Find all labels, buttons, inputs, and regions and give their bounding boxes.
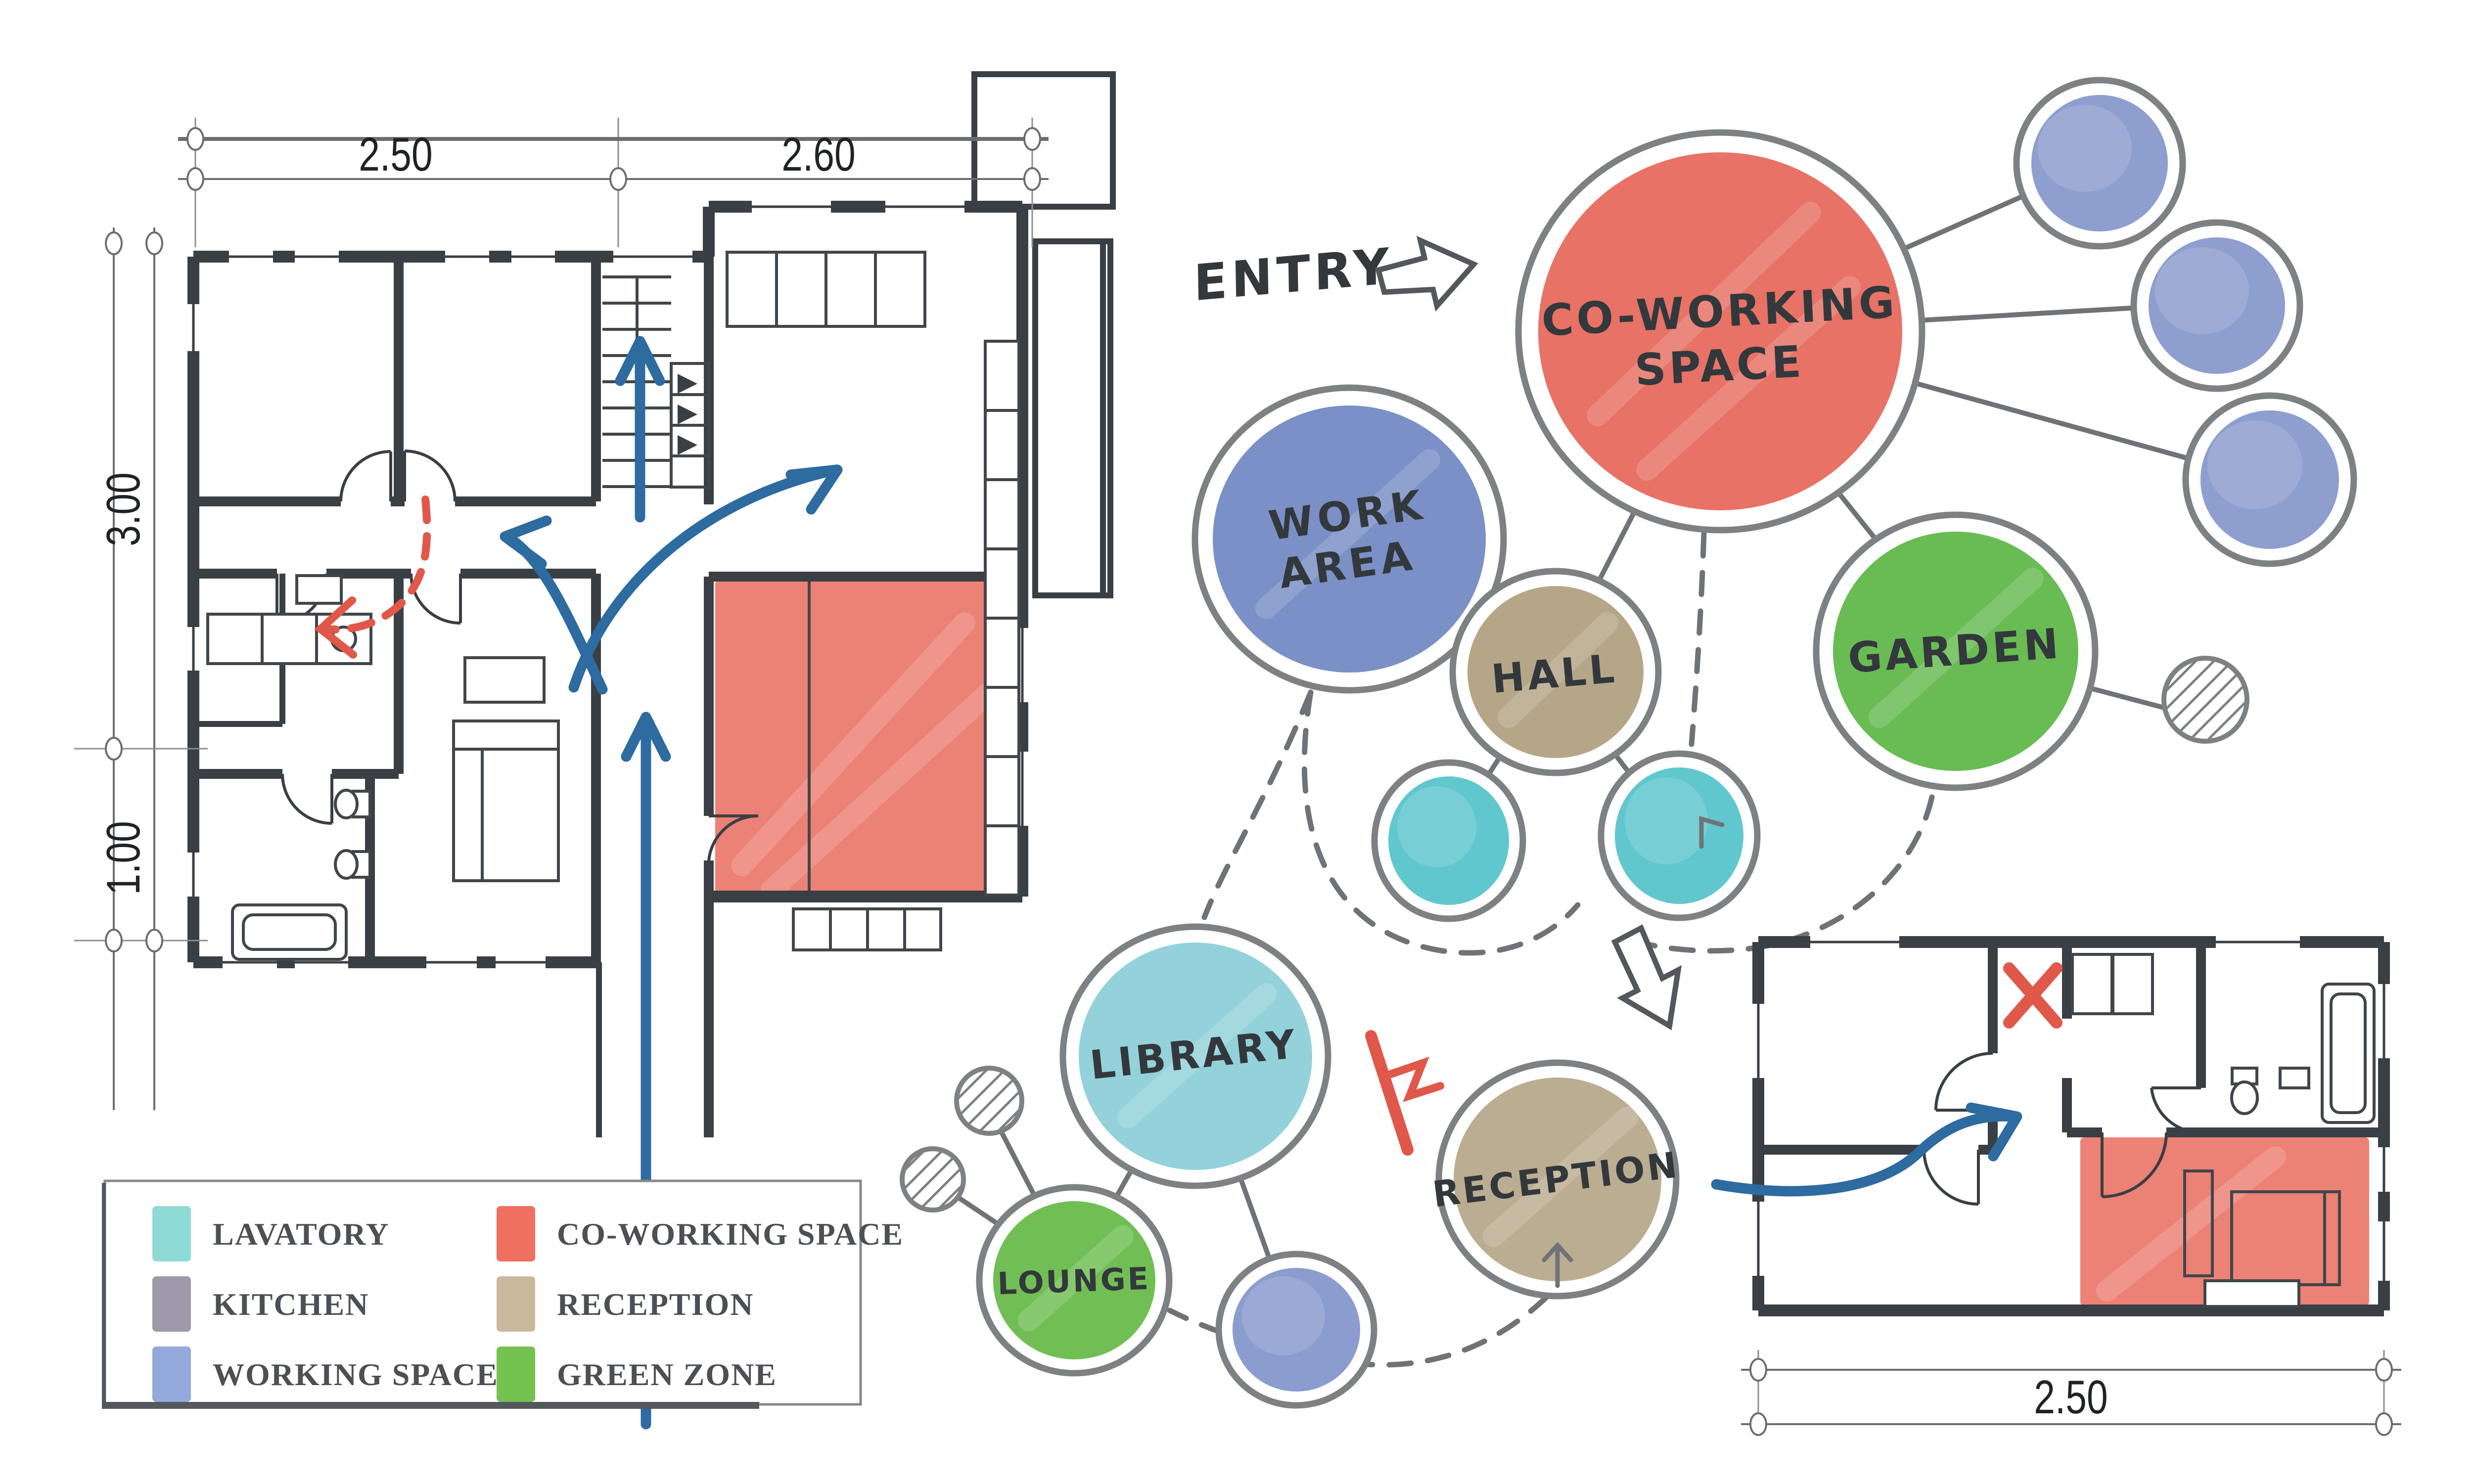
legend-label-coworking-space: CO-WORKING SPACE: [557, 1216, 904, 1252]
garden-hatched-node: [2164, 658, 2247, 741]
bidet: [335, 851, 370, 878]
bubble-lavatory-2: [1601, 754, 1757, 918]
bench: [2205, 1281, 2299, 1306]
dim-left-lower-value: 1.00: [97, 821, 150, 895]
legend-swatch-lavatory: [152, 1206, 191, 1261]
bubble-hall: HALL: [1453, 571, 1658, 773]
entry-annotation: ENTRY: [1193, 232, 1479, 315]
sink: [2280, 1068, 2309, 1088]
lounge-label: LOUNGE: [997, 1260, 1151, 1302]
closet: [2113, 954, 2152, 1014]
bubble-lounge: LOUNGE: [979, 1187, 1169, 1373]
dim-bottom-value: 2.50: [2034, 1371, 2107, 1424]
legend-label-green-zone: GREEN ZONE: [557, 1357, 777, 1392]
bathtub: [232, 905, 346, 959]
plan-b-x-marker: [2009, 968, 2057, 1023]
stair-direction-mark: [678, 374, 697, 394]
dashed-link-coworking-lavatory: [1692, 534, 1704, 744]
concept-sketch-canvas: 2.50 2.60 3.00 1.00: [0, 0, 2473, 1484]
bubble-library: LIBRARY: [1063, 927, 1328, 1186]
plan-a-balcony: [1035, 241, 1110, 595]
bubble-lavatory-1: [1374, 763, 1523, 919]
legend-label-kitchen: KITCHEN: [213, 1287, 369, 1322]
bathtub: [2322, 984, 2374, 1123]
entry-label: ENTRY: [1193, 237, 1393, 312]
legend: LAVATORY KITCHEN WORKING SPACE CO-WORKIN…: [102, 1181, 904, 1405]
wc-sink: [297, 576, 341, 603]
legend-swatch-kitchen: [152, 1276, 191, 1332]
lounge-hatched-node-1: [957, 1068, 1022, 1133]
flow-down-block-arrow-icon: [1600, 921, 1697, 1039]
kitchen-counter: [208, 614, 371, 664]
floor-plan-b: 2.50: [1716, 935, 2401, 1435]
legend-label-working-space: WORKING SPACE: [213, 1357, 499, 1392]
legend-swatch-green-zone: [497, 1347, 535, 1402]
bubble-working-small: [1219, 1254, 1374, 1405]
plan-b-dimension: 2.50: [1741, 1350, 2401, 1435]
legend-swatch-coworking-space: [497, 1206, 535, 1261]
bubble-satellite-2: [2134, 223, 2300, 389]
stair-direction-mark: [678, 405, 697, 424]
plan-a-window-seat: [793, 909, 941, 950]
legend-label-lavatory: LAVATORY: [213, 1216, 390, 1252]
bubble-coworking-space: CO-WORKING SPACE: [1518, 133, 1922, 530]
bubble-garden: GARDEN: [1816, 515, 2095, 788]
dashed-link-workarea-library: [1204, 692, 1311, 917]
toilet: [335, 790, 370, 818]
bubble-satellite-3: [2186, 396, 2354, 564]
coworking-label-line2: SPACE: [1634, 336, 1806, 396]
legend-swatch-working-space: [152, 1347, 191, 1402]
toilet: [2232, 1068, 2257, 1114]
legend-swatch-reception: [497, 1276, 535, 1332]
lounge-hatched-node-2: [902, 1149, 963, 1210]
wardrobe-row: [985, 341, 1019, 895]
dim-top-left-value: 2.50: [359, 128, 432, 181]
bubble-reception: RECEPTION: [1430, 1063, 1682, 1296]
legend-label-reception: RECEPTION: [557, 1287, 754, 1322]
sofa: [454, 658, 558, 881]
dim-top-right-value: 2.60: [781, 128, 855, 181]
coffee-table: [465, 658, 544, 702]
plan-a-dimensions-top: 2.50 2.60: [178, 118, 1049, 247]
stair-direction-mark: [678, 435, 697, 455]
no-link-marker: [1371, 1036, 1440, 1150]
stair-up-arrow: [620, 341, 660, 517]
dim-left-upper-value: 3.00: [97, 472, 150, 546]
bubble-satellite-1: [2016, 80, 2183, 246]
closet: [2072, 954, 2112, 1014]
